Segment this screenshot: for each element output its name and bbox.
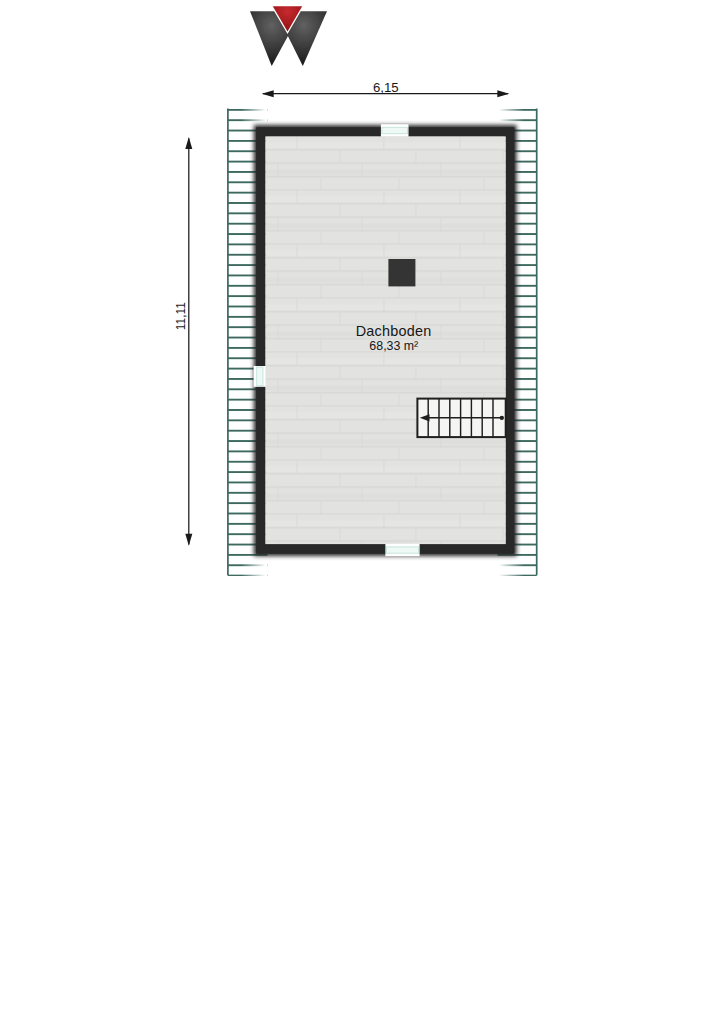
- svg-text:6,15: 6,15: [373, 80, 399, 95]
- svg-text:68,33 m²: 68,33 m²: [369, 339, 418, 353]
- svg-text:11,11: 11,11: [174, 302, 188, 331]
- svg-text:Dachboden: Dachboden: [356, 323, 432, 339]
